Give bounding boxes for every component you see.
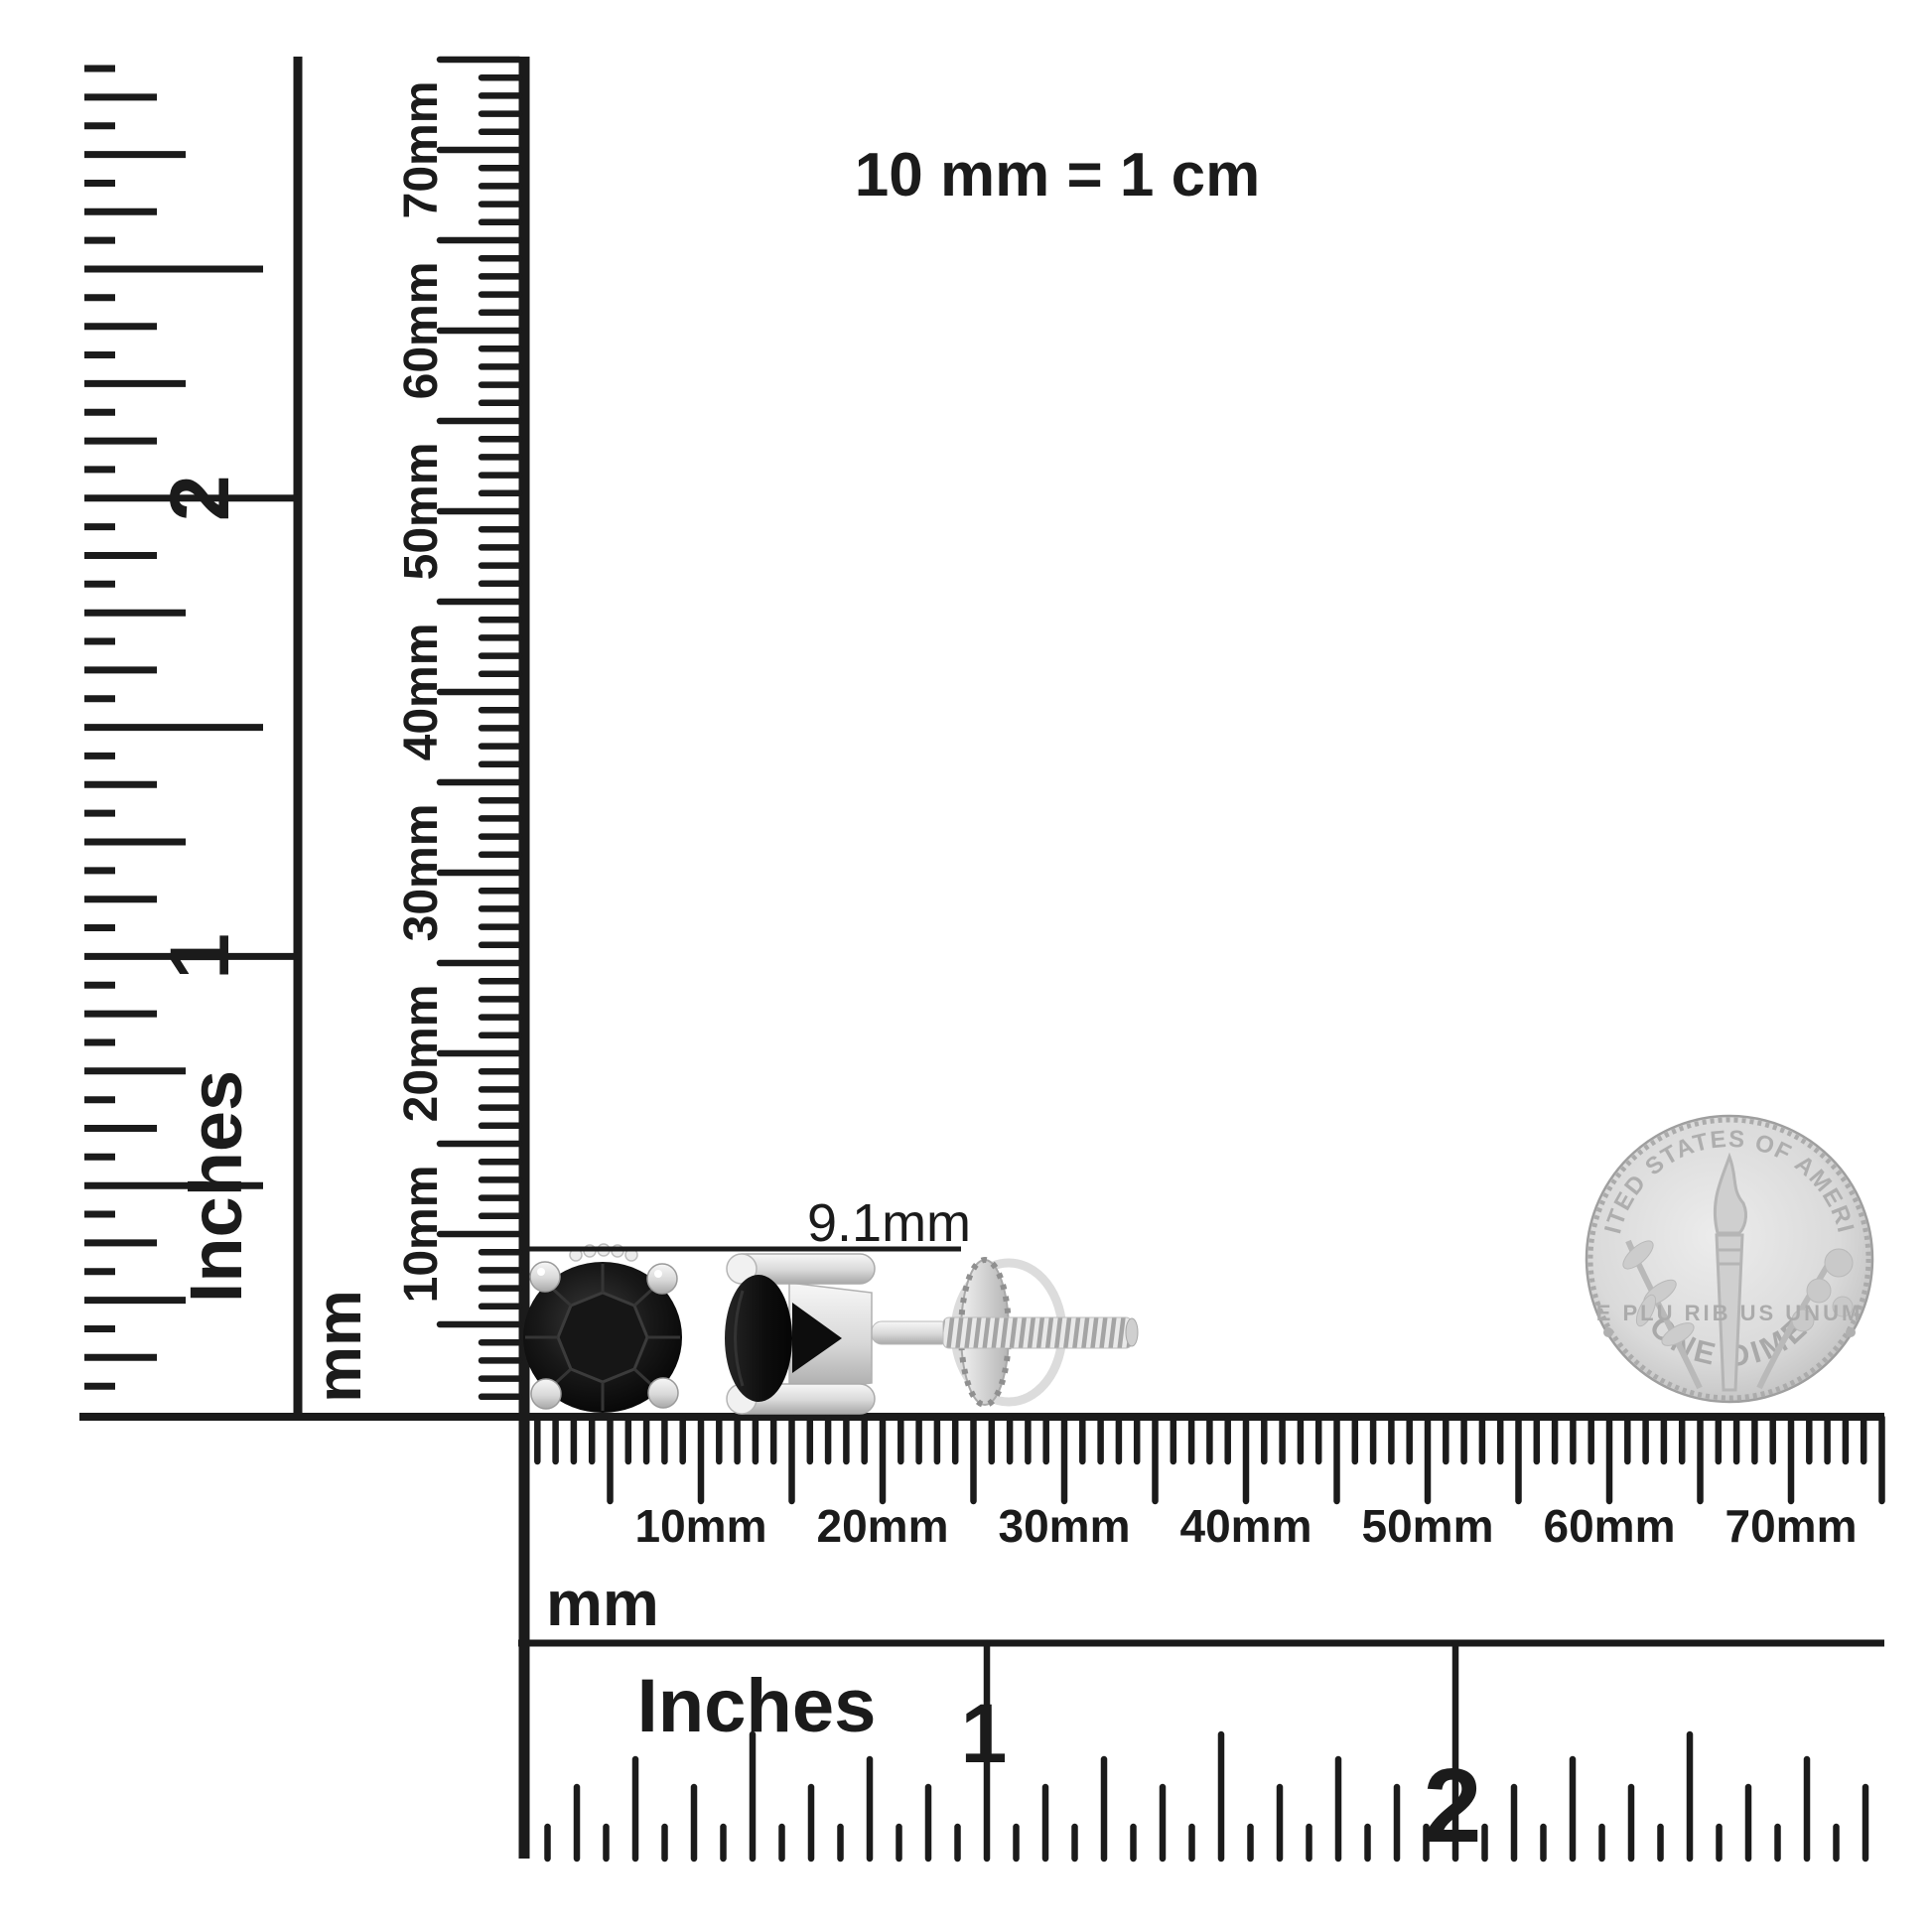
left-inch-ruler-unit-label: Inches bbox=[175, 1070, 257, 1303]
mm-label: 10mm bbox=[395, 1166, 448, 1304]
mm-label: 10mm bbox=[635, 1500, 767, 1552]
mm-label: 50mm bbox=[395, 443, 448, 581]
mm-label: 60mm bbox=[1544, 1500, 1676, 1552]
mm-label: 30mm bbox=[395, 804, 448, 942]
product-scale-image: 12 Inches 10mm20mm30mm40mm50mm60mm70mm m… bbox=[0, 0, 1932, 1932]
mm-label: 40mm bbox=[395, 623, 448, 761]
horizontal-mm-ruler: 10mm20mm30mm40mm50mm60mm70mm mm bbox=[537, 1418, 1881, 1639]
bottom-inch-ruler-unit-label: Inches bbox=[637, 1664, 877, 1748]
vertical-mm-ruler-ticks bbox=[440, 60, 519, 1397]
inch-numeral: 1 bbox=[961, 1687, 1008, 1780]
scale-note: 10 mm = 1 cm bbox=[855, 141, 1260, 209]
mm-label: 30mm bbox=[999, 1500, 1131, 1552]
horizontal-mm-ruler-ticks bbox=[537, 1418, 1881, 1501]
measurement-label: 9.1mm bbox=[807, 1193, 971, 1253]
left-inch-ruler: 12 Inches bbox=[84, 57, 298, 1419]
vertical-mm-ruler-unit-label: mm bbox=[303, 1290, 374, 1403]
scene: 12 Inches 10mm20mm30mm40mm50mm60mm70mm m… bbox=[0, 0, 1932, 1932]
threaded-post bbox=[943, 1317, 1138, 1348]
coin-left-dot bbox=[1603, 1327, 1613, 1337]
vertical-mm-ruler: 10mm20mm30mm40mm50mm60mm70mm mm bbox=[303, 57, 524, 1859]
coin-middle-text: E PLU RIB US UNUM bbox=[1596, 1301, 1863, 1325]
earring-post bbox=[872, 1321, 951, 1344]
inch-numeral: 2 bbox=[1424, 1747, 1482, 1864]
mm-label: 60mm bbox=[395, 262, 448, 400]
bottom-inch-ruler: 12 Inches bbox=[518, 1643, 1884, 1864]
inch-numeral: 2 bbox=[153, 475, 246, 521]
horizontal-mm-ruler-unit-label: mm bbox=[546, 1568, 659, 1639]
mm-label: 20mm bbox=[395, 985, 448, 1123]
mm-label: 70mm bbox=[1725, 1500, 1858, 1552]
mm-label: 20mm bbox=[817, 1500, 949, 1552]
mm-label: 70mm bbox=[395, 81, 448, 219]
earrings-photo bbox=[523, 1244, 1138, 1414]
front-stud-earring bbox=[523, 1244, 682, 1413]
mm-label: 40mm bbox=[1180, 1500, 1312, 1552]
coin-right-dot bbox=[1846, 1327, 1856, 1337]
horizontal-mm-ruler-labels: 10mm20mm30mm40mm50mm60mm70mm bbox=[635, 1500, 1858, 1552]
mm-label: 50mm bbox=[1362, 1500, 1494, 1552]
side-stud-earring bbox=[725, 1254, 1138, 1414]
inch-numeral: 1 bbox=[153, 933, 246, 980]
dime-coin: UNITED STATES OF AMERICA ONE DIME E PLU … bbox=[0, 0, 1872, 1402]
vertical-mm-ruler-labels: 10mm20mm30mm40mm50mm60mm70mm bbox=[395, 81, 448, 1304]
